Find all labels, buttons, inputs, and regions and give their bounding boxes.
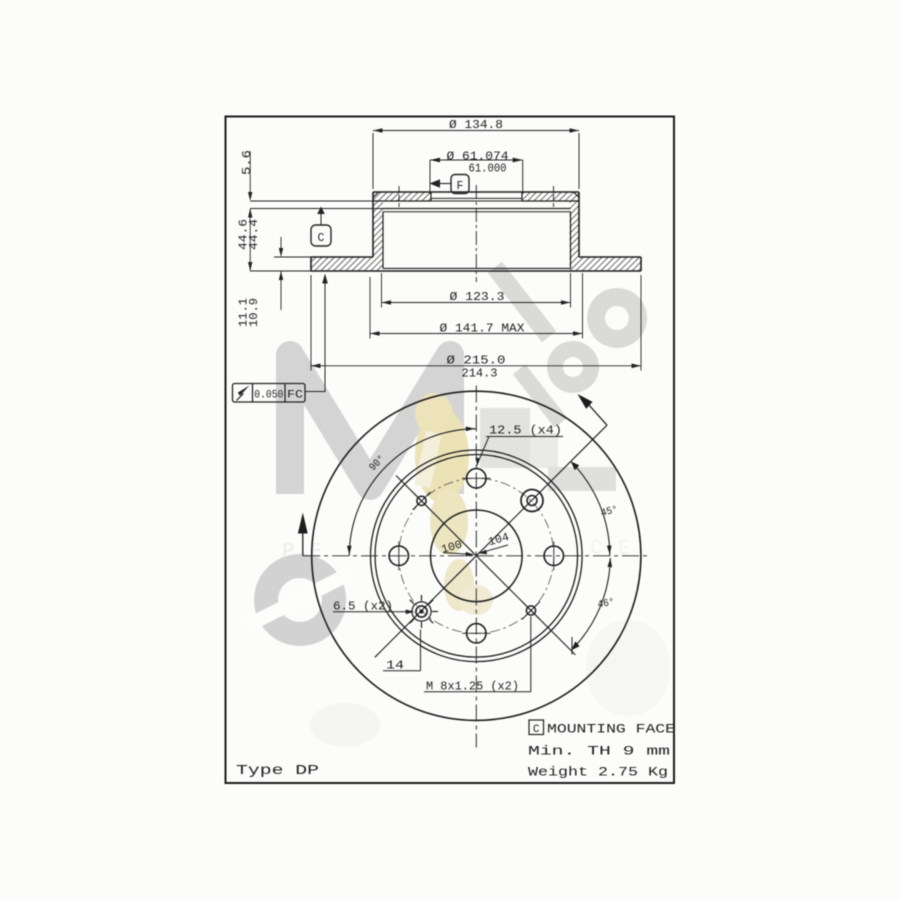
svg-text:5.6: 5.6 (241, 150, 254, 175)
svg-text:214.3: 214.3 (462, 367, 498, 381)
svg-text:C: C (318, 232, 325, 245)
svg-text:10.9: 10.9 (248, 298, 261, 327)
svg-text:C: C (590, 538, 603, 561)
svg-text:0.050: 0.050 (254, 390, 283, 402)
svg-text:MOUNTING FACE: MOUNTING FACE (547, 722, 675, 737)
svg-text:44.4: 44.4 (248, 219, 261, 250)
svg-text:Type DP: Type DP (236, 764, 319, 779)
svg-text:E: E (618, 538, 631, 561)
svg-text:FC: FC (287, 390, 303, 402)
svg-text:Min. TH 9 mm: Min. TH 9 mm (528, 744, 670, 759)
svg-text:C: C (533, 724, 540, 736)
svg-text:Ø 215.0: Ø 215.0 (447, 354, 506, 368)
svg-text:F: F (457, 180, 464, 193)
svg-text:Ø 141.7 MAX: Ø 141.7 MAX (440, 322, 525, 336)
svg-text:61.000: 61.000 (469, 162, 507, 176)
svg-text:Ø 134.8: Ø 134.8 (449, 118, 503, 132)
svg-text:Ø 123.3: Ø 123.3 (450, 290, 505, 304)
svg-text:Weight 2.75 Kg: Weight 2.75 Kg (528, 765, 668, 780)
svg-text:P: P (282, 541, 295, 564)
svg-text:12.5 (x4): 12.5 (x4) (489, 424, 562, 438)
